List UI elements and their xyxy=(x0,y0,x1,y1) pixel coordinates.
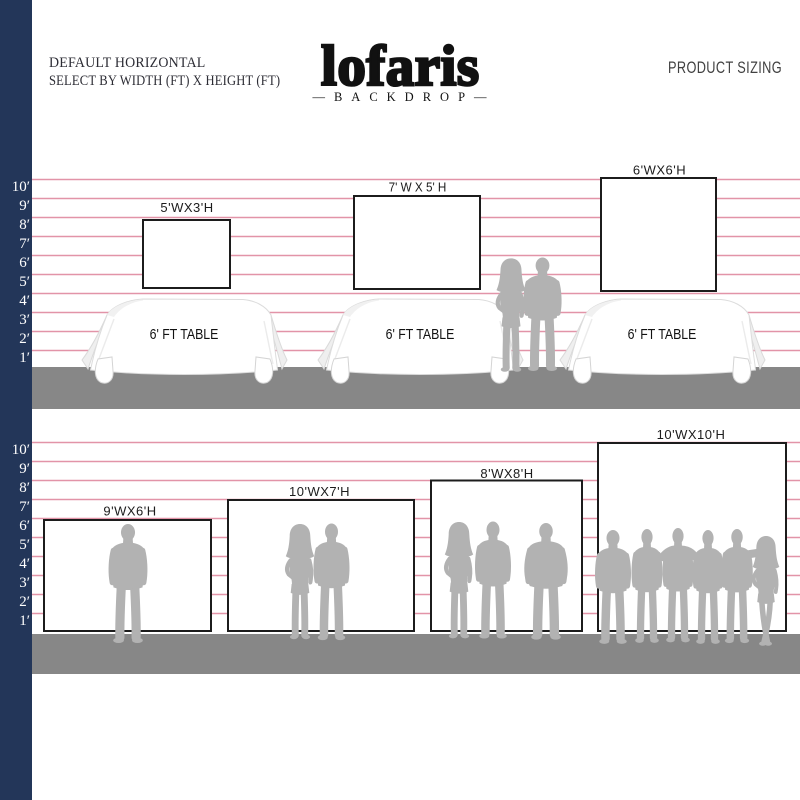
svg-text:5′: 5′ xyxy=(19,537,30,553)
svg-text:8′: 8′ xyxy=(19,480,30,496)
svg-text:DEFAULT HORIZONTAL: DEFAULT HORIZONTAL xyxy=(49,55,205,72)
svg-text:PRODUCT SIZING: PRODUCT SIZING xyxy=(668,58,782,77)
svg-text:4′: 4′ xyxy=(19,556,30,572)
svg-text:5'WX3'H: 5'WX3'H xyxy=(160,200,213,215)
svg-text:6' FT TABLE: 6' FT TABLE xyxy=(150,326,219,342)
svg-text:6' FT TABLE: 6' FT TABLE xyxy=(386,326,455,342)
svg-text:10'WX10'H: 10'WX10'H xyxy=(657,427,726,442)
svg-text:6′: 6′ xyxy=(19,255,30,271)
svg-text:10'WX7'H: 10'WX7'H xyxy=(289,484,350,499)
svg-text:9'WX6'H: 9'WX6'H xyxy=(103,504,156,519)
svg-text:3′: 3′ xyxy=(19,312,30,328)
svg-text:2′: 2′ xyxy=(19,331,30,347)
svg-text:7′: 7′ xyxy=(19,499,30,515)
svg-text:6'WX6'H: 6'WX6'H xyxy=(633,163,686,178)
svg-text:SELECT BY WIDTH (FT) X HEIGHT: SELECT BY WIDTH (FT) X HEIGHT (FT) xyxy=(49,72,280,89)
svg-text:8'WX8'H: 8'WX8'H xyxy=(480,466,533,481)
svg-text:10′: 10′ xyxy=(12,442,30,458)
svg-text:3′: 3′ xyxy=(19,575,30,591)
svg-text:6′: 6′ xyxy=(19,518,30,534)
svg-text:6' FT TABLE: 6' FT TABLE xyxy=(628,326,697,342)
svg-text:2′: 2′ xyxy=(19,594,30,610)
svg-text:10′: 10′ xyxy=(12,179,30,195)
svg-text:5′: 5′ xyxy=(19,274,30,290)
svg-text:4′: 4′ xyxy=(19,293,30,309)
svg-text:9′: 9′ xyxy=(19,461,30,477)
svg-text:1′: 1′ xyxy=(19,350,30,366)
svg-text:1′: 1′ xyxy=(19,613,30,629)
svg-text:7' W X 5' H: 7' W X 5' H xyxy=(389,180,447,195)
svg-text:8′: 8′ xyxy=(19,217,30,233)
svg-text:—BACKDROP—: —BACKDROP— xyxy=(311,90,495,104)
svg-text:9′: 9′ xyxy=(19,198,30,214)
svg-text:lofaris: lofaris xyxy=(321,35,479,98)
svg-text:7′: 7′ xyxy=(19,236,30,252)
